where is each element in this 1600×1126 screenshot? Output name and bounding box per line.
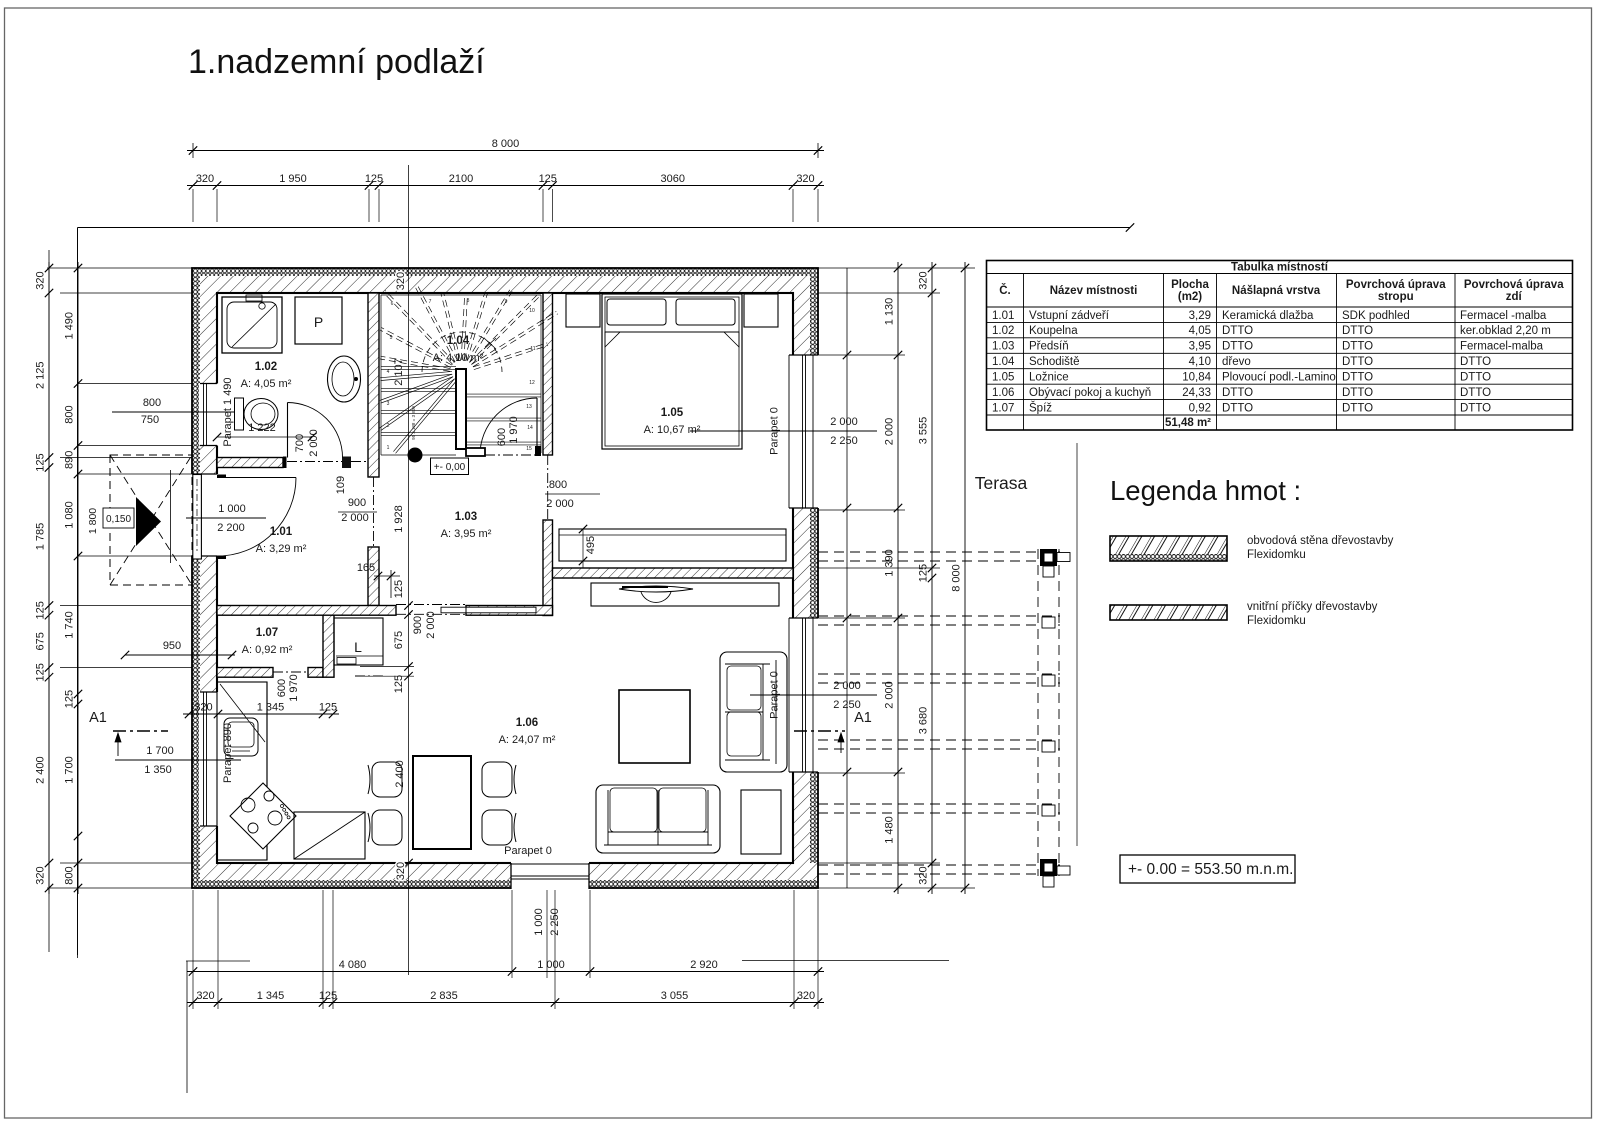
svg-text:Legenda hmot :: Legenda hmot : xyxy=(1110,475,1301,506)
svg-text:1.06: 1.06 xyxy=(992,387,1014,399)
svg-text:3,95: 3,95 xyxy=(1189,341,1211,353)
svg-text:2 920: 2 920 xyxy=(690,959,718,971)
svg-text:A: 3,95 m²: A: 3,95 m² xyxy=(441,528,492,540)
svg-text:A: 3,29 m²: A: 3,29 m² xyxy=(256,543,307,555)
svg-text:vnitřní příčky dřevostavby: vnitřní příčky dřevostavby xyxy=(1247,601,1378,613)
svg-text:1.02: 1.02 xyxy=(992,325,1014,337)
svg-text:A: 4,10 m²: A: 4,10 m² xyxy=(433,352,484,364)
svg-text:700: 700 xyxy=(294,434,306,452)
svg-text:320: 320 xyxy=(796,173,814,185)
svg-text:675: 675 xyxy=(393,631,405,649)
svg-text:Flexidomku: Flexidomku xyxy=(1247,615,1306,627)
svg-text:12: 12 xyxy=(529,380,535,386)
svg-text:1.04: 1.04 xyxy=(992,356,1015,368)
svg-text:Keramická dlažba: Keramická dlažba xyxy=(1222,310,1314,322)
svg-text:1 080: 1 080 xyxy=(64,501,76,529)
svg-text:2 125: 2 125 xyxy=(35,361,47,389)
svg-text:1 000: 1 000 xyxy=(537,959,565,971)
svg-text:125: 125 xyxy=(393,580,405,598)
svg-text:320: 320 xyxy=(196,990,214,1002)
svg-text:Povrchová úprava: Povrchová úprava xyxy=(1464,279,1564,291)
svg-text:Název místnosti: Název místnosti xyxy=(1050,285,1138,297)
svg-text:DTTO: DTTO xyxy=(1222,341,1253,353)
svg-text:320: 320 xyxy=(35,866,47,884)
svg-text:ker.obklad 2,20 m: ker.obklad 2,20 m xyxy=(1460,325,1551,337)
svg-text:109: 109 xyxy=(335,476,347,494)
svg-text:1 800: 1 800 xyxy=(87,508,99,534)
svg-text:0,150: 0,150 xyxy=(106,514,131,525)
svg-text:125: 125 xyxy=(539,173,557,185)
svg-text:L: L xyxy=(354,639,362,655)
svg-text:125: 125 xyxy=(64,690,76,708)
svg-text:Plocha: Plocha xyxy=(1171,279,1209,291)
svg-text:2 000: 2 000 xyxy=(833,680,861,692)
svg-text:1 785: 1 785 xyxy=(35,523,47,551)
svg-text:890: 890 xyxy=(64,451,76,469)
svg-text:2 000: 2 000 xyxy=(425,611,437,639)
svg-text:A: 4,05 m²: A: 4,05 m² xyxy=(241,378,292,390)
svg-text:1 345: 1 345 xyxy=(257,990,285,1002)
svg-text:1.07: 1.07 xyxy=(992,402,1014,414)
svg-text:320: 320 xyxy=(196,173,214,185)
svg-text:125: 125 xyxy=(319,990,337,1002)
svg-text:320: 320 xyxy=(395,862,407,880)
svg-text:DTTO: DTTO xyxy=(1222,387,1253,399)
svg-text:DTTO: DTTO xyxy=(1460,402,1491,414)
svg-text:2 000: 2 000 xyxy=(308,429,320,457)
svg-text:1.04: 1.04 xyxy=(447,335,470,347)
svg-text:Špíž: Špíž xyxy=(1029,401,1052,414)
svg-text:675: 675 xyxy=(35,632,47,650)
svg-text:DTTO: DTTO xyxy=(1342,372,1373,384)
svg-text:2 835: 2 835 xyxy=(430,990,458,1002)
svg-text:14: 14 xyxy=(527,425,533,431)
svg-text:125: 125 xyxy=(319,702,337,714)
svg-text:2100: 2100 xyxy=(449,173,473,185)
svg-text:600: 600 xyxy=(276,679,288,697)
svg-text:125: 125 xyxy=(35,453,47,471)
svg-text:1.nadzemní podlaží: 1.nadzemní podlaží xyxy=(188,43,485,81)
svg-text:Fermacel-malba: Fermacel-malba xyxy=(1460,341,1544,353)
svg-text:320: 320 xyxy=(194,702,212,714)
svg-text:Flexidomku: Flexidomku xyxy=(1247,549,1306,561)
svg-text:2 000: 2 000 xyxy=(341,512,369,524)
svg-text:zdí: zdí xyxy=(1506,291,1523,303)
svg-text:2 000: 2 000 xyxy=(884,681,896,709)
svg-text:750: 750 xyxy=(141,414,159,426)
svg-text:DTTO: DTTO xyxy=(1460,372,1491,384)
svg-text:stropu: stropu xyxy=(1378,291,1414,303)
svg-text:3 055: 3 055 xyxy=(661,990,689,1002)
svg-text:1.01: 1.01 xyxy=(992,310,1014,322)
svg-text:2: 2 xyxy=(387,423,390,429)
svg-text:3: 3 xyxy=(387,401,390,407)
svg-text:DTTO: DTTO xyxy=(1460,387,1491,399)
svg-text:1.03: 1.03 xyxy=(992,341,1014,353)
svg-text:1 950: 1 950 xyxy=(279,173,307,185)
svg-text:P: P xyxy=(314,314,323,330)
svg-text:obvodová stěna dřevostavby: obvodová stěna dřevostavby xyxy=(1247,535,1394,547)
svg-text:13: 13 xyxy=(526,404,532,410)
svg-text:800: 800 xyxy=(143,397,161,409)
svg-text:1: 1 xyxy=(387,445,390,451)
svg-text:Parapet 0: Parapet 0 xyxy=(504,845,552,857)
svg-text:800: 800 xyxy=(64,866,76,884)
svg-text:125: 125 xyxy=(365,173,383,185)
svg-text:1 490: 1 490 xyxy=(64,312,76,340)
svg-text:800: 800 xyxy=(549,479,567,491)
svg-text:2 000: 2 000 xyxy=(884,418,896,446)
svg-text:4,05: 4,05 xyxy=(1189,325,1211,337)
svg-text:950: 950 xyxy=(163,640,181,652)
svg-text:7: 7 xyxy=(429,299,432,305)
svg-text:SDK podhled: SDK podhled xyxy=(1342,310,1410,322)
svg-text:Č.: Č. xyxy=(999,284,1011,297)
svg-text:A1: A1 xyxy=(854,710,872,726)
svg-text:125: 125 xyxy=(393,675,405,693)
svg-text:A: 0,92 m²: A: 0,92 m² xyxy=(242,644,293,656)
svg-text:Nášlapná vrstva: Nášlapná vrstva xyxy=(1232,285,1321,297)
svg-text:(m2): (m2) xyxy=(1178,291,1202,303)
svg-text:DTTO: DTTO xyxy=(1342,387,1373,399)
svg-text:Schodiště: Schodiště xyxy=(1029,356,1080,368)
svg-text:Předsíň: Předsíň xyxy=(1029,341,1069,353)
svg-text:1.01: 1.01 xyxy=(270,526,293,538)
svg-text:1 970: 1 970 xyxy=(288,674,300,702)
svg-text:3 680: 3 680 xyxy=(918,707,930,735)
svg-text:125: 125 xyxy=(35,601,47,619)
svg-text:DTTO: DTTO xyxy=(1342,325,1373,337)
svg-text:1.02: 1.02 xyxy=(255,361,277,373)
svg-text:Vstupní zádveří: Vstupní zádveří xyxy=(1029,310,1110,322)
svg-text:10,84: 10,84 xyxy=(1182,372,1211,384)
svg-text:9: 9 xyxy=(505,299,508,305)
svg-text:1.05: 1.05 xyxy=(992,372,1014,384)
svg-text:5: 5 xyxy=(390,335,393,341)
svg-text:Obývací pokoj a kuchyň: Obývací pokoj a kuchyň xyxy=(1029,387,1151,399)
svg-text:1.06: 1.06 xyxy=(516,717,538,729)
svg-text:1 928: 1 928 xyxy=(393,505,405,533)
svg-text:8 000: 8 000 xyxy=(951,564,963,592)
svg-text:1 480: 1 480 xyxy=(884,816,896,844)
svg-text:800: 800 xyxy=(64,405,76,423)
svg-text:Plovoucí podl.-Lamino: Plovoucí podl.-Lamino xyxy=(1222,372,1336,384)
svg-text:900: 900 xyxy=(348,497,366,509)
svg-text:2 107: 2 107 xyxy=(393,358,405,386)
svg-text:51,48 m²: 51,48 m² xyxy=(1165,417,1211,429)
svg-text:320: 320 xyxy=(35,271,47,289)
svg-text:1 222: 1 222 xyxy=(248,422,276,434)
svg-text:8 000: 8 000 xyxy=(492,138,520,150)
svg-text:15: 15 xyxy=(526,446,532,452)
svg-text:3060: 3060 xyxy=(661,173,685,185)
svg-text:165: 165 xyxy=(357,562,375,574)
svg-text:Ložnice: Ložnice xyxy=(1029,372,1069,384)
svg-text:495: 495 xyxy=(585,536,597,554)
svg-text:1 700: 1 700 xyxy=(146,745,174,757)
svg-text:Tabulka místností: Tabulka místností xyxy=(1231,262,1329,274)
svg-text:Terasa: Terasa xyxy=(975,473,1028,493)
svg-text:DTTO: DTTO xyxy=(1222,402,1253,414)
svg-text:1 350: 1 350 xyxy=(144,764,172,776)
svg-text:11: 11 xyxy=(530,346,535,352)
svg-text:1 970: 1 970 xyxy=(508,416,520,444)
svg-text:2 200: 2 200 xyxy=(217,522,245,534)
svg-text:1 345: 1 345 xyxy=(257,702,285,714)
svg-text:1 000: 1 000 xyxy=(533,908,545,936)
svg-text:1.05: 1.05 xyxy=(661,407,684,419)
svg-text:8: 8 xyxy=(467,298,470,304)
svg-text:dřevo: dřevo xyxy=(1222,356,1251,368)
svg-text:125: 125 xyxy=(918,564,930,582)
svg-text:2 250: 2 250 xyxy=(830,435,858,447)
svg-text:125: 125 xyxy=(35,663,47,681)
svg-text:1 000: 1 000 xyxy=(218,503,246,515)
svg-text:2 400: 2 400 xyxy=(35,756,47,784)
svg-text:1.03: 1.03 xyxy=(455,511,477,523)
svg-text:DTTO: DTTO xyxy=(1460,356,1491,368)
svg-text:1.07: 1.07 xyxy=(256,627,278,639)
svg-text:A1: A1 xyxy=(89,710,107,726)
svg-text:95 x 188 = 3 800: 95 x 188 = 3 800 xyxy=(411,406,416,440)
svg-text:320: 320 xyxy=(395,272,407,290)
svg-text:900: 900 xyxy=(412,616,424,634)
svg-text:Koupelna: Koupelna xyxy=(1029,325,1078,337)
svg-text:Parapet 890: Parapet 890 xyxy=(222,723,234,783)
svg-text:2 000: 2 000 xyxy=(830,416,858,428)
svg-text:0,92: 0,92 xyxy=(1189,402,1211,414)
svg-text:A: 10,67 m²: A: 10,67 m² xyxy=(644,424,701,436)
svg-text:6: 6 xyxy=(391,301,394,307)
svg-text:4 080: 4 080 xyxy=(339,959,367,971)
svg-text:1 390: 1 390 xyxy=(884,549,896,577)
svg-text:600: 600 xyxy=(496,428,508,446)
svg-text:A: 24,07 m²: A: 24,07 m² xyxy=(499,734,556,746)
svg-text:3 555: 3 555 xyxy=(918,417,930,445)
svg-text:DTTO: DTTO xyxy=(1342,402,1373,414)
svg-text:1 740: 1 740 xyxy=(64,611,76,639)
svg-text:3,29: 3,29 xyxy=(1189,310,1211,322)
svg-text:24,33: 24,33 xyxy=(1182,387,1211,399)
svg-text:2 000: 2 000 xyxy=(546,498,574,510)
svg-text:320: 320 xyxy=(918,866,930,884)
svg-text:320: 320 xyxy=(797,990,815,1002)
svg-text:Povrchová úprava: Povrchová úprava xyxy=(1346,279,1446,291)
svg-text:Fermacel -malba: Fermacel -malba xyxy=(1460,310,1547,322)
svg-text:DTTO: DTTO xyxy=(1222,325,1253,337)
svg-text:4,10: 4,10 xyxy=(1189,356,1211,368)
svg-text:+- 0.00 = 553.50 m.n.m.: +- 0.00 = 553.50 m.n.m. xyxy=(1128,861,1293,878)
svg-text:+- 0,00: +- 0,00 xyxy=(434,462,466,473)
svg-text:10: 10 xyxy=(529,308,535,314)
svg-text:4: 4 xyxy=(387,369,390,375)
svg-text:320: 320 xyxy=(918,271,930,289)
svg-text:1 130: 1 130 xyxy=(884,298,896,326)
svg-text:DTTO: DTTO xyxy=(1342,356,1373,368)
svg-text:1 700: 1 700 xyxy=(64,756,76,784)
svg-text:2 250: 2 250 xyxy=(549,908,561,936)
svg-text:2 400: 2 400 xyxy=(394,760,406,788)
svg-text:DTTO: DTTO xyxy=(1342,341,1373,353)
